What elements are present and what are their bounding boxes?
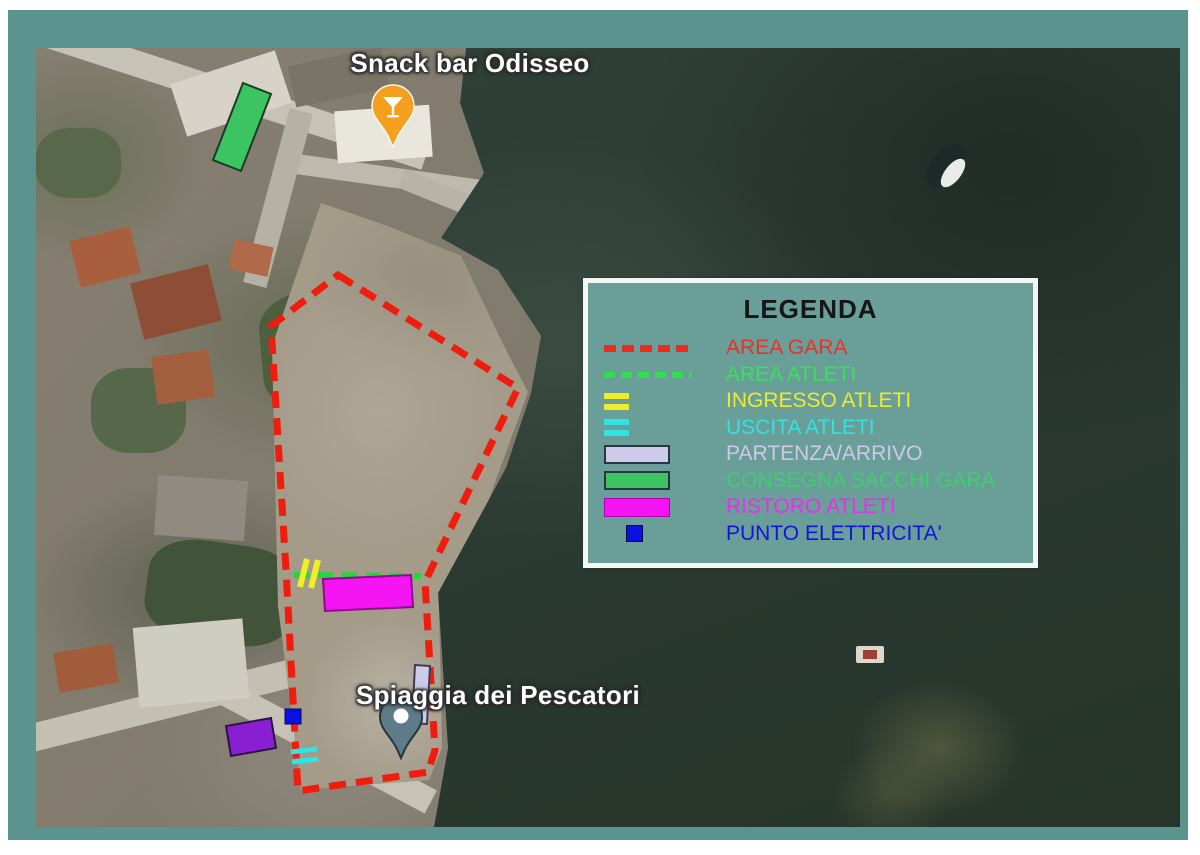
snack-bar-label: Snack bar Odisseo (350, 48, 590, 79)
swatch-cell (604, 390, 726, 412)
building-roof (334, 105, 432, 164)
vegetation-patch (36, 128, 121, 198)
legend-item-label: RISTORO ATLETI (726, 495, 896, 519)
legend-item-label: INGRESSO ATLETI (726, 389, 911, 413)
building-roof (154, 475, 248, 541)
legend-panel: LEGENDA AREA GARA AREA ATLETI INGRESSO A… (583, 278, 1038, 568)
yellow-bar-swatch (604, 393, 629, 399)
legend-item-uscita: USCITA ATLETI (604, 415, 1025, 442)
legend-item-partenza: PARTENZA/ARRIVO (604, 441, 1025, 468)
legend-item-label: PUNTO ELETTRICITA' (726, 522, 942, 546)
swatch-cell (604, 372, 726, 378)
legend-item-label: CONSEGNA SACCHI GARA (726, 469, 996, 493)
blue-square-swatch (626, 525, 643, 542)
legend-item-label: AREA GARA (726, 336, 847, 360)
green-dashed-swatch (604, 372, 692, 378)
underwater-reef (806, 663, 1046, 827)
legend-item-label: USCITA ATLETI (726, 416, 875, 440)
swatch-cell (604, 417, 726, 439)
lavender-rect-swatch (604, 445, 670, 464)
satellite-map: Snack bar Odisseo Spiaggia dei Pescatori… (36, 48, 1180, 827)
legend-item-consegna: CONSEGNA SACCHI GARA (604, 468, 1025, 495)
legend-item-label: PARTENZA/ARRIVO (726, 442, 922, 466)
swatch-cell (604, 345, 726, 352)
swatch-cell (604, 525, 726, 542)
legend-item-elettricita: PUNTO ELETTRICITA' (604, 521, 1025, 548)
legend-item-ristoro: RISTORO ATLETI (604, 494, 1025, 521)
red-dashed-swatch (604, 345, 692, 352)
legend-title: LEGENDA (588, 294, 1033, 325)
green-rect-swatch (604, 471, 670, 490)
legend-item-ingresso: INGRESSO ATLETI (604, 388, 1025, 415)
legend-rows: AREA GARA AREA ATLETI INGRESSO ATLETI US… (604, 335, 1025, 547)
cyan-bar-swatch (604, 430, 629, 436)
legend-item-area-atleti: AREA ATLETI (604, 362, 1025, 389)
swatch-cell (604, 471, 726, 490)
yellow-bar-swatch (604, 404, 629, 410)
legend-item-area-gara: AREA GARA (604, 335, 1025, 362)
beach-label: Spiaggia dei Pescatori (353, 680, 643, 711)
cyan-bar-swatch (604, 419, 629, 425)
outer-frame: Snack bar Odisseo Spiaggia dei Pescatori… (8, 10, 1188, 840)
legend-item-label: AREA ATLETI (726, 363, 856, 387)
swatch-cell (604, 445, 726, 464)
magenta-rect-swatch (604, 498, 670, 517)
building-roof (133, 618, 250, 707)
building-roof (151, 349, 215, 405)
swatch-cell (604, 498, 726, 517)
